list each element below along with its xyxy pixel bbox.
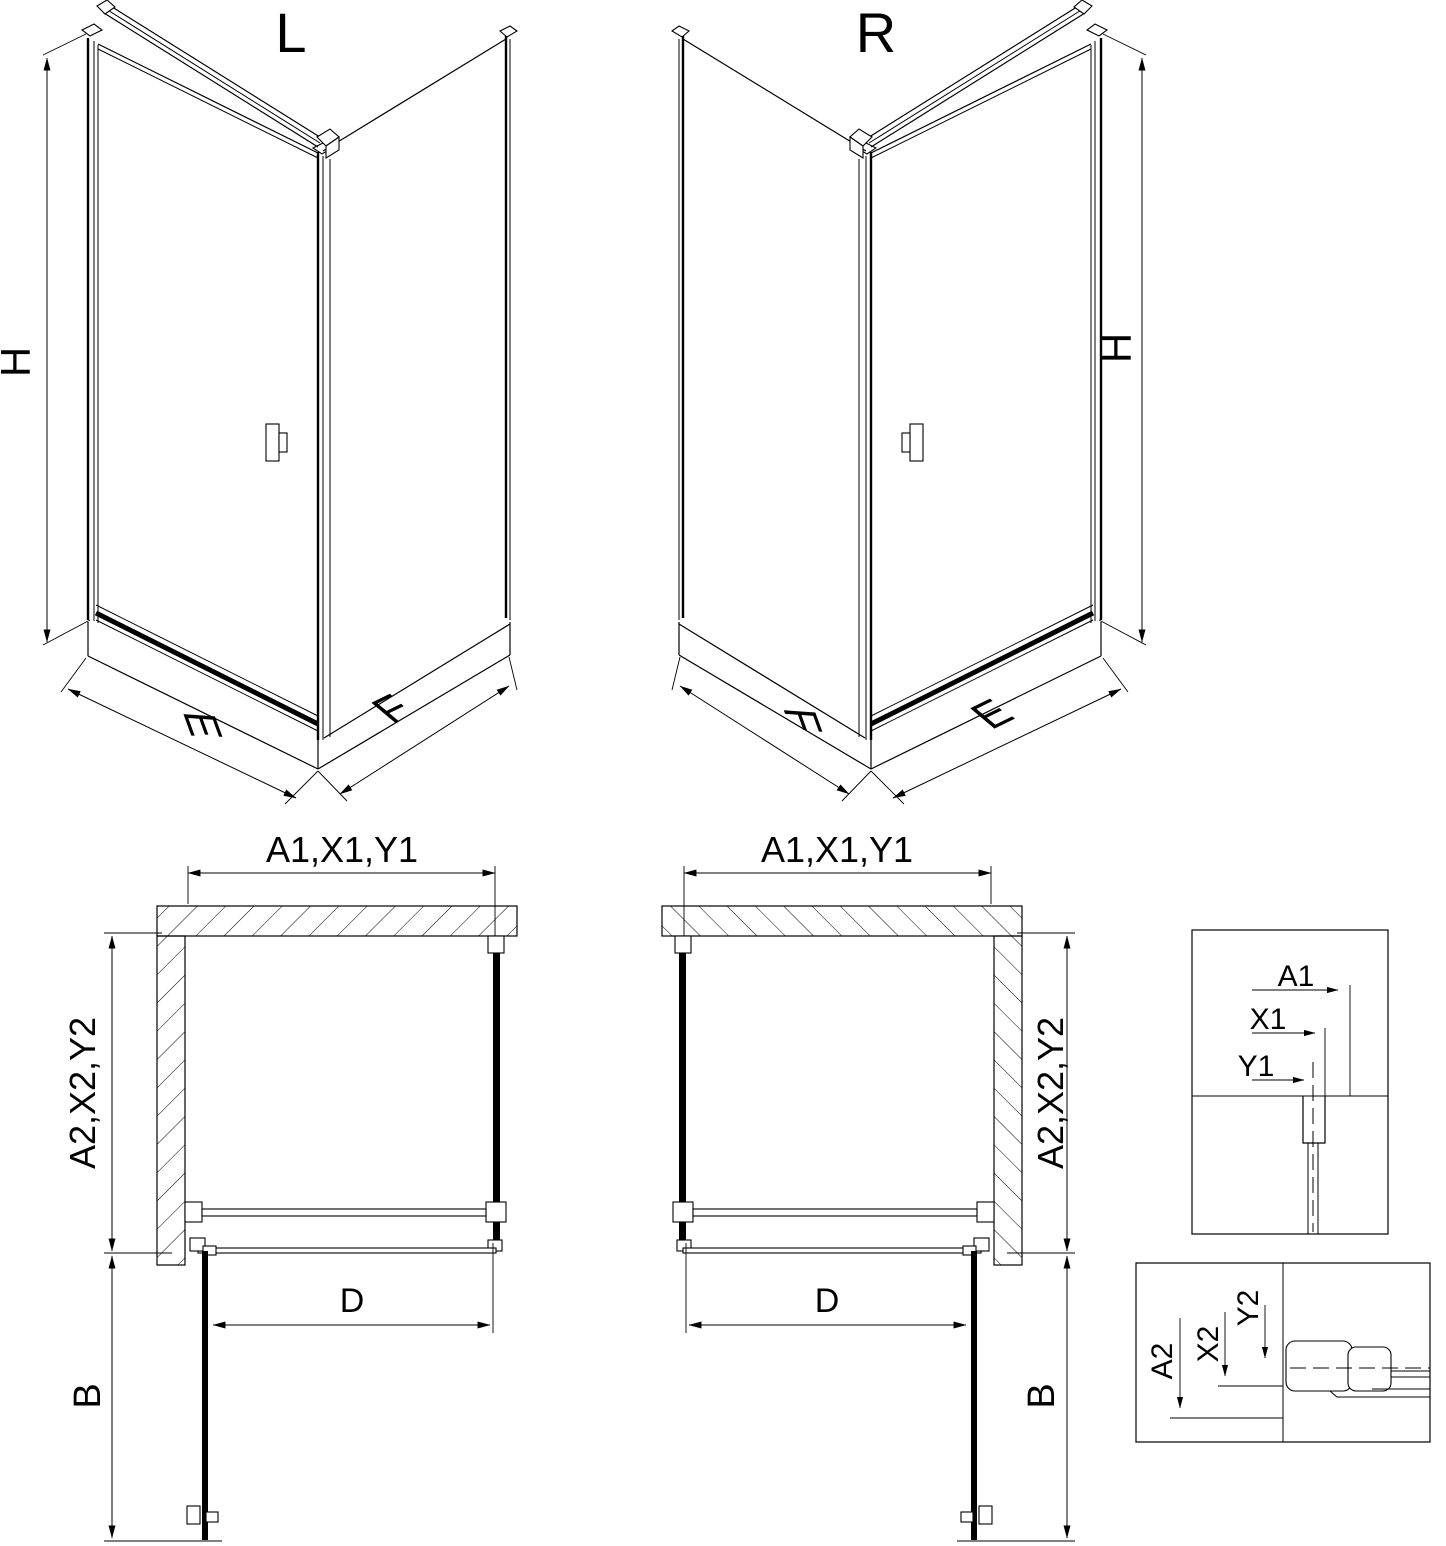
height-dim-label-left: H [0, 347, 39, 377]
iso-right-view [672, 0, 1146, 804]
technical-drawing-sheet: L R H E F H F E A1,X1,Y1 A2,X2,Y2 D B A1… [0, 0, 1446, 1546]
plan-right-swing-label: B [1021, 1383, 1063, 1408]
detail-x1-label: X1 [1250, 1003, 1287, 1036]
iso-left-view [43, 0, 517, 804]
detail-a2-label: A2 [1146, 1343, 1179, 1380]
detail-depth-view [1136, 1263, 1430, 1442]
variant-left-title: L [275, 1, 306, 64]
plan-left-top-width-label: A1,X1,Y1 [266, 829, 418, 870]
detail-x2-label: X2 [1192, 1326, 1225, 1363]
plan-left-depth-label: A2,X2,Y2 [62, 1017, 103, 1169]
plan-right-door-width-label: D [815, 1282, 840, 1320]
plan-right-top-width-label: A1,X1,Y1 [761, 829, 913, 870]
door-width-dim-label-left: E [172, 710, 233, 740]
plan-left-swing-label: B [67, 1383, 109, 1408]
side-width-dim-label-right: F [772, 706, 832, 734]
labels: L R H E F H F E A1,X1,Y1 A2,X2,Y2 D B A1… [0, 1, 1314, 1409]
detail-a1-label: A1 [1278, 960, 1315, 993]
plan-left-door-width-label: D [340, 1282, 365, 1320]
variant-right-title: R [856, 1, 896, 64]
plan-right-depth-label: A2,X2,Y2 [1030, 1017, 1071, 1169]
detail-y1-label: Y1 [1238, 1050, 1275, 1083]
shower-enclosure-drawing: L R H E F H F E A1,X1,Y1 A2,X2,Y2 D B A1… [0, 0, 1446, 1546]
plan-right-view [662, 866, 1075, 1541]
height-dim-label-right: H [1093, 333, 1140, 363]
detail-y2-label: Y2 [1232, 1290, 1265, 1327]
plan-left-view [104, 866, 517, 1541]
